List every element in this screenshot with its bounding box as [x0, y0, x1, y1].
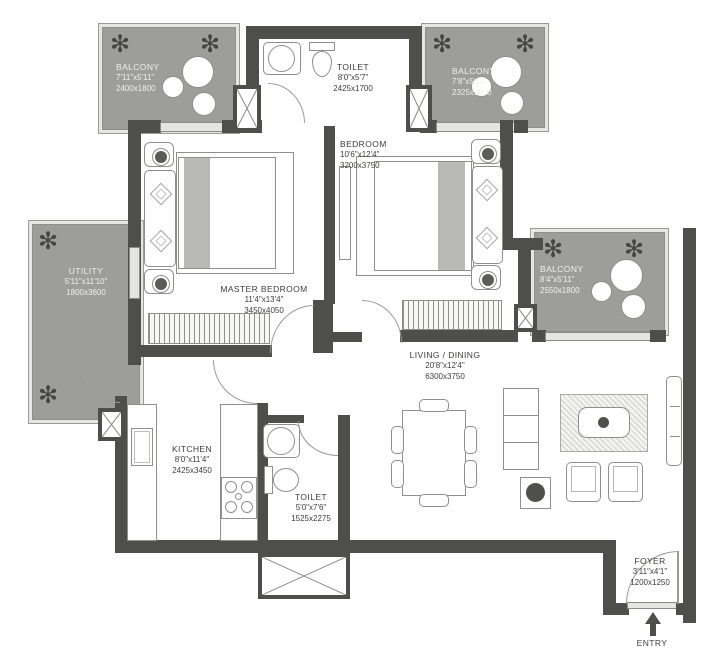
room-label-balcony-tl: BALCONY 7'11"x5'11" 2400x1800	[116, 62, 216, 95]
room-label-master-bedroom: MASTER BEDROOM 11'4"x13'4" 3450x4050	[197, 284, 331, 317]
door-toilet-bottom	[298, 421, 338, 456]
wall	[246, 26, 422, 39]
shaft	[98, 408, 125, 441]
plant-icon: ✻	[624, 238, 644, 262]
room-label-utility: UTILITY 5'11"x11'10" 1800x3600	[38, 266, 134, 299]
master-bed-runner	[184, 158, 210, 268]
wall	[400, 330, 518, 342]
wall	[518, 250, 531, 308]
room-label-balcony-tr: BALCONY 7'8"x5'11" 2325x1800	[452, 66, 552, 99]
wall	[330, 332, 362, 342]
bedroom-bed-runner	[438, 162, 465, 270]
wall	[115, 540, 603, 553]
sofa-seam	[670, 406, 680, 407]
shaft	[514, 304, 537, 332]
door-toilet-top	[268, 83, 305, 123]
wc-tank	[309, 42, 335, 51]
plant-icon: ✻	[432, 33, 452, 57]
nightstand-lamp	[144, 269, 174, 294]
dining-table	[402, 410, 466, 496]
bedroom-side-wardrobe	[339, 166, 351, 260]
wall	[256, 415, 304, 423]
room-label-kitchen: KITCHEN 8'0"x11'4" 2425x3450	[142, 444, 242, 477]
wall	[338, 415, 350, 545]
entry-label: ENTRY	[612, 638, 692, 649]
room-label-balcony-right: BALCONY 8'4"x5'11" 2550x1800	[540, 264, 640, 297]
room-label-living-dining: LIVING / DINING 20'8"x12'4" 6300x3750	[385, 350, 505, 383]
floor-plan: ✻ ✻ ✻ ✻ ✻ ✻ ✻ ✻	[0, 0, 723, 659]
plant-icon: ✻	[543, 238, 563, 262]
hob-burner	[241, 501, 253, 513]
tv-unit	[503, 388, 539, 470]
master-wardrobe	[148, 313, 270, 344]
hob-burner	[225, 501, 237, 513]
sofa	[666, 376, 682, 466]
wall	[140, 345, 272, 357]
room-label-toilet-bottom: TOILET 5'0"x7'6" 1525x2275	[262, 492, 360, 525]
wall	[246, 26, 259, 88]
hob-knob	[235, 493, 242, 500]
hob-burner	[225, 481, 237, 493]
room-label-toilet-top: TOILET 8'0"x5'7" 2425x1700	[305, 62, 401, 95]
plant-icon: ✻	[110, 33, 130, 57]
washbasin-bowl	[267, 427, 295, 455]
dining-chair	[464, 426, 477, 454]
wc-bowl	[273, 468, 299, 492]
plant-icon: ✻	[200, 33, 220, 57]
wall	[514, 120, 528, 133]
door-kitchen	[213, 360, 257, 404]
plant-icon: ✻	[38, 384, 58, 408]
entry-arrow-icon	[650, 623, 656, 636]
plant-icon: ✻	[515, 33, 535, 57]
sofa-seam	[670, 436, 680, 437]
door-bedroom	[362, 300, 402, 343]
pot-plant-icon	[526, 483, 545, 502]
balcony-chair	[621, 294, 646, 319]
dining-chair	[419, 399, 449, 412]
wall	[650, 330, 666, 342]
room-label-bedroom: BEDROOM 10'6"x12'4" 3200x3750	[340, 139, 440, 172]
dining-chair	[419, 494, 449, 507]
plant-icon: ✻	[38, 230, 58, 254]
wall	[676, 603, 688, 615]
wc-tank	[264, 466, 273, 494]
hob-burner	[241, 481, 253, 493]
washbasin-bowl	[268, 45, 295, 72]
wall	[324, 126, 335, 304]
coffee-table-decor	[598, 417, 609, 428]
shaft	[233, 85, 261, 132]
armchair-cushion	[613, 466, 638, 492]
shaft	[258, 553, 350, 599]
dining-chair	[391, 460, 404, 488]
wall	[603, 603, 629, 615]
balcony-chair	[192, 92, 216, 116]
wall	[128, 120, 141, 365]
nightstand-lamp	[144, 142, 174, 167]
nightstand-lamp	[471, 139, 501, 164]
shelf-line	[504, 415, 538, 416]
window-sliding	[545, 332, 651, 341]
bedroom-wardrobe	[402, 300, 502, 330]
room-label-foyer: FOYER 3'11"x4'1" 1200x1250	[606, 556, 694, 589]
window	[160, 122, 223, 132]
wall	[409, 26, 422, 88]
dining-chair	[464, 460, 477, 488]
shaft	[406, 85, 432, 132]
shelf-line	[504, 442, 538, 443]
wall	[500, 238, 543, 250]
armchair-cushion	[571, 466, 596, 492]
dining-chair	[391, 426, 404, 454]
nightstand-lamp	[471, 265, 501, 290]
